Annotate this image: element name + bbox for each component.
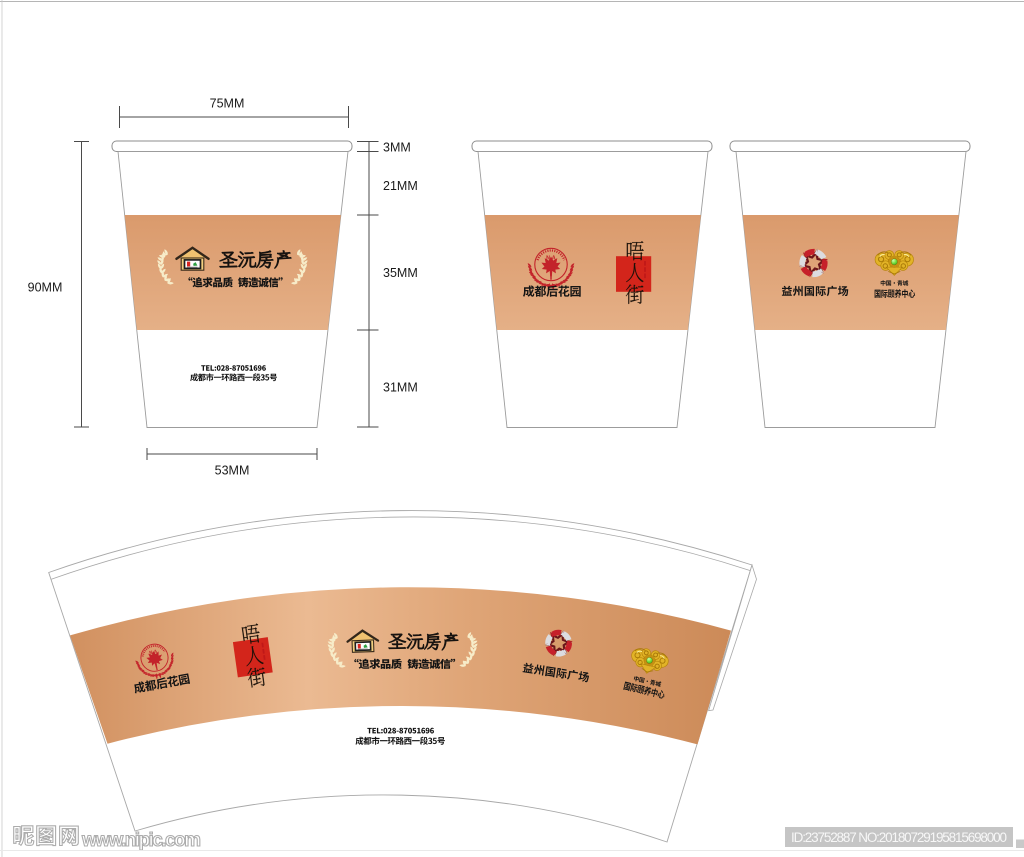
svg-text:35MM: 35MM [383, 266, 418, 280]
svg-text:21MM: 21MM [383, 179, 418, 193]
svg-text:31MM: 31MM [383, 381, 418, 395]
svg-text:53MM: 53MM [215, 464, 250, 478]
svg-text:3MM: 3MM [383, 141, 411, 155]
svg-text:ID:23752887 NO:201807291958156: ID:23752887 NO:20180729195815698000 [791, 830, 1007, 845]
svg-text:75MM: 75MM [210, 97, 245, 111]
svg-text:www.nipic.com: www.nipic.com [81, 830, 201, 851]
svg-text:90MM: 90MM [28, 281, 63, 295]
